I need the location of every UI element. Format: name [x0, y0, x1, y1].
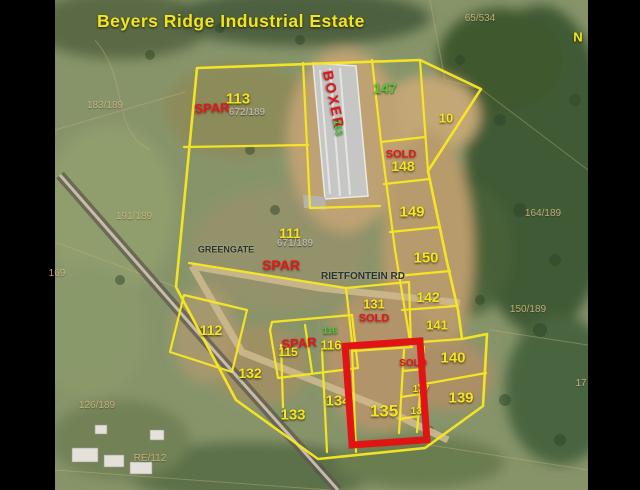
map-canvas: 113SPAR672/189BOXER15314710SOLD148149150… — [0, 0, 640, 490]
left-letterbox-bar — [0, 0, 55, 490]
highlighted-plot-135-box — [341, 337, 430, 448]
right-letterbox-bar — [588, 0, 640, 490]
satellite-imagery — [0, 0, 615, 490]
aerial-map — [0, 0, 640, 490]
estate-title: Beyers Ridge Industrial Estate — [97, 11, 365, 32]
